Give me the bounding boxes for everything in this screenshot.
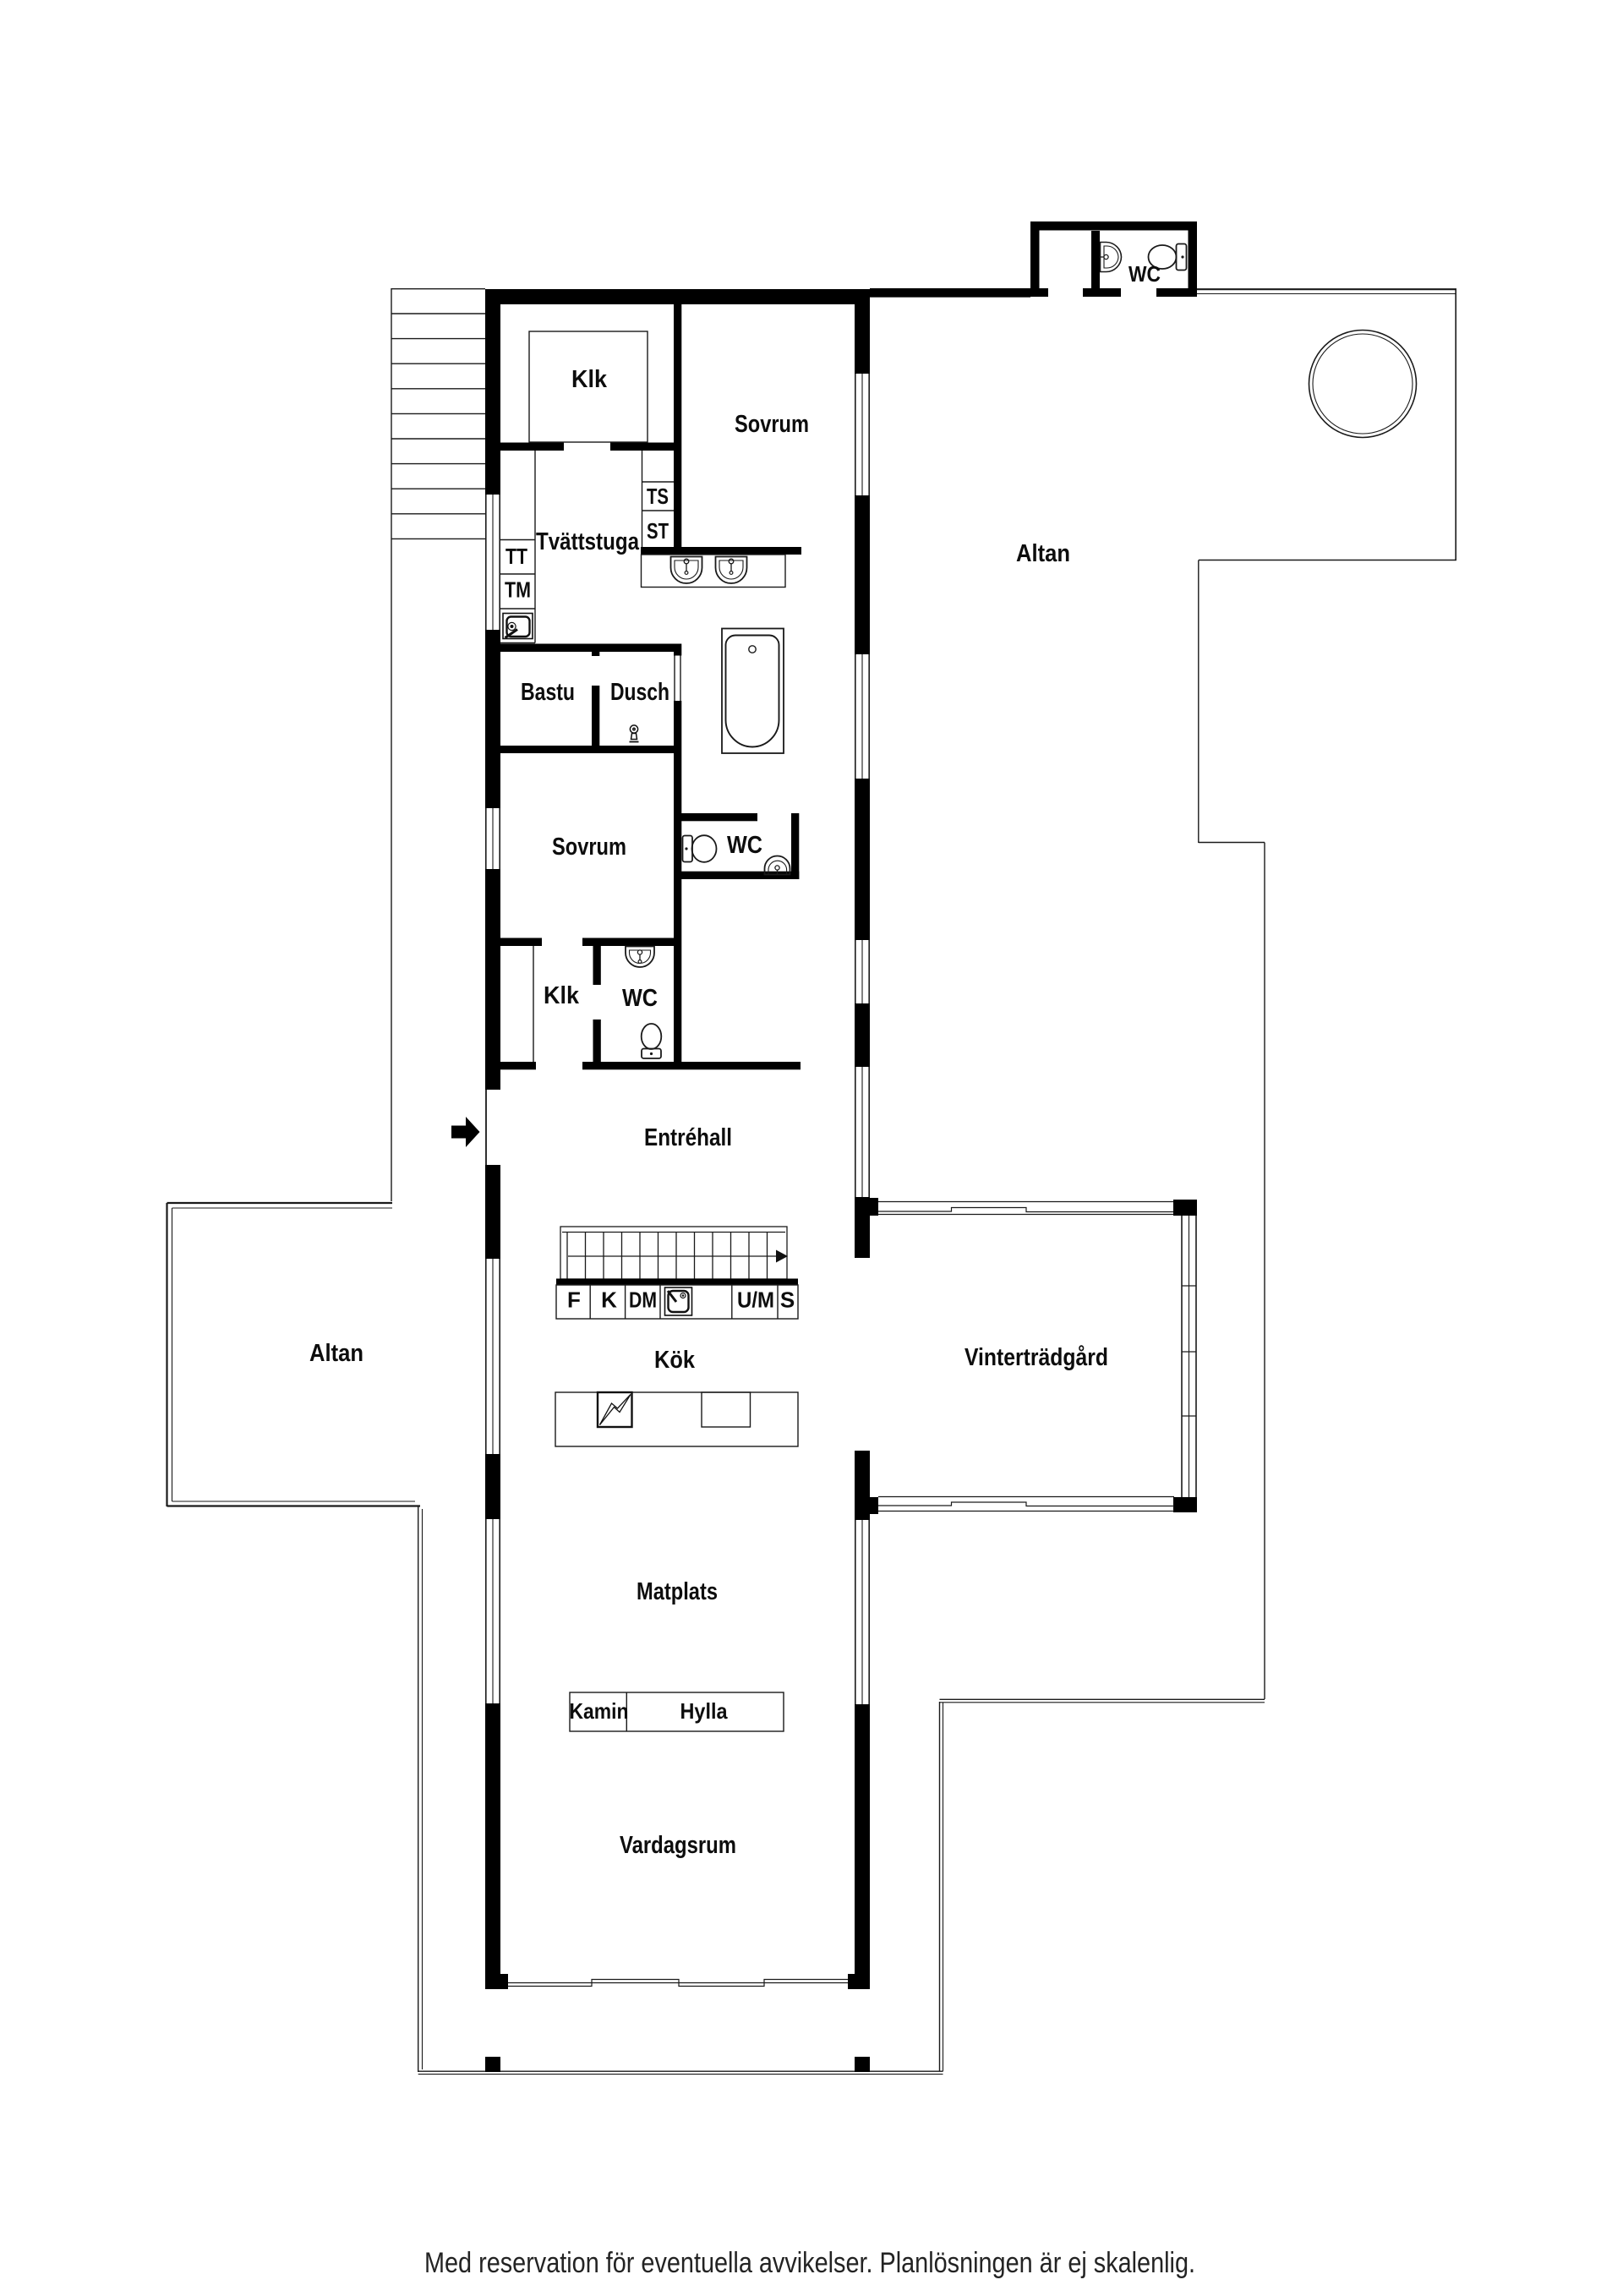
svg-text:WC: WC <box>727 832 762 859</box>
svg-text:TM: TM <box>505 577 531 603</box>
svg-text:Tvättstuga: Tvättstuga <box>536 528 640 555</box>
svg-text:ST: ST <box>647 518 669 544</box>
svg-text:Altan: Altan <box>309 1340 363 1367</box>
svg-text:U/M: U/M <box>737 1287 774 1313</box>
svg-text:Hylla: Hylla <box>680 1698 728 1724</box>
svg-text:TT: TT <box>505 544 527 569</box>
svg-text:Matplats: Matplats <box>637 1578 718 1605</box>
svg-text:Klk: Klk <box>571 366 608 393</box>
svg-text:DM: DM <box>629 1287 657 1313</box>
svg-text:S: S <box>780 1287 795 1313</box>
svg-text:Sovrum: Sovrum <box>735 411 809 438</box>
svg-text:WC: WC <box>1128 261 1161 287</box>
svg-text:Altan: Altan <box>1016 540 1070 567</box>
svg-text:Sovrum: Sovrum <box>552 834 626 861</box>
svg-text:Entréhall: Entréhall <box>644 1124 732 1151</box>
svg-text:Bastu: Bastu <box>521 679 575 706</box>
svg-text:Kök: Kök <box>654 1347 696 1374</box>
svg-text:Vinterträdgård: Vinterträdgård <box>965 1344 1108 1371</box>
svg-text:Dusch: Dusch <box>610 679 669 706</box>
svg-text:K: K <box>601 1287 617 1313</box>
svg-text:F: F <box>567 1287 581 1313</box>
svg-text:WC: WC <box>622 985 658 1012</box>
svg-text:Klk: Klk <box>544 982 580 1009</box>
svg-text:Vardagsrum: Vardagsrum <box>620 1832 736 1859</box>
svg-text:TS: TS <box>647 484 669 509</box>
svg-text:Med reservation för eventuella: Med reservation för eventuella avvikelse… <box>424 2247 1195 2279</box>
svg-text:Kamin: Kamin <box>570 1698 629 1724</box>
